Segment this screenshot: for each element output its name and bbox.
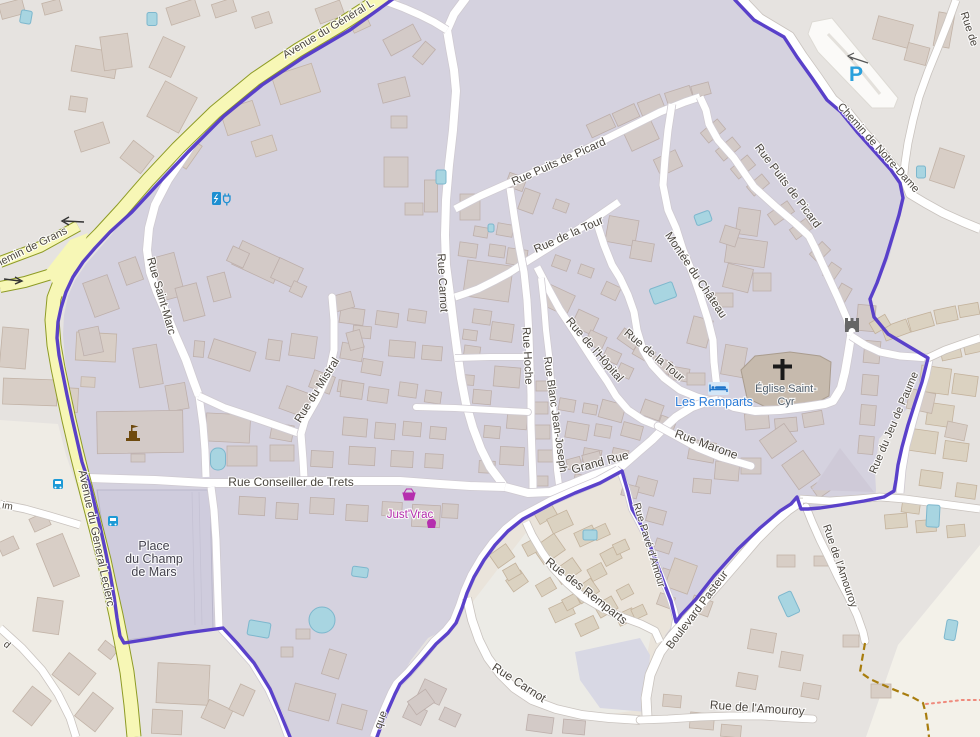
svg-text:P: P [849, 63, 863, 86]
svg-text:du Champ: du Champ [125, 552, 183, 566]
svg-text:Just'Vrac: Just'Vrac [387, 509, 434, 521]
svg-text:Place: Place [138, 539, 169, 553]
svg-text:im: im [1, 500, 13, 513]
svg-text:Église Saint-: Église Saint- [755, 382, 817, 395]
svg-text:de Mars: de Mars [131, 565, 176, 579]
svg-text:Les Remparts: Les Remparts [675, 395, 753, 409]
svg-text:Rue Conseiller de Trets: Rue Conseiller de Trets [228, 475, 353, 489]
svg-text:Cyr: Cyr [777, 396, 794, 408]
